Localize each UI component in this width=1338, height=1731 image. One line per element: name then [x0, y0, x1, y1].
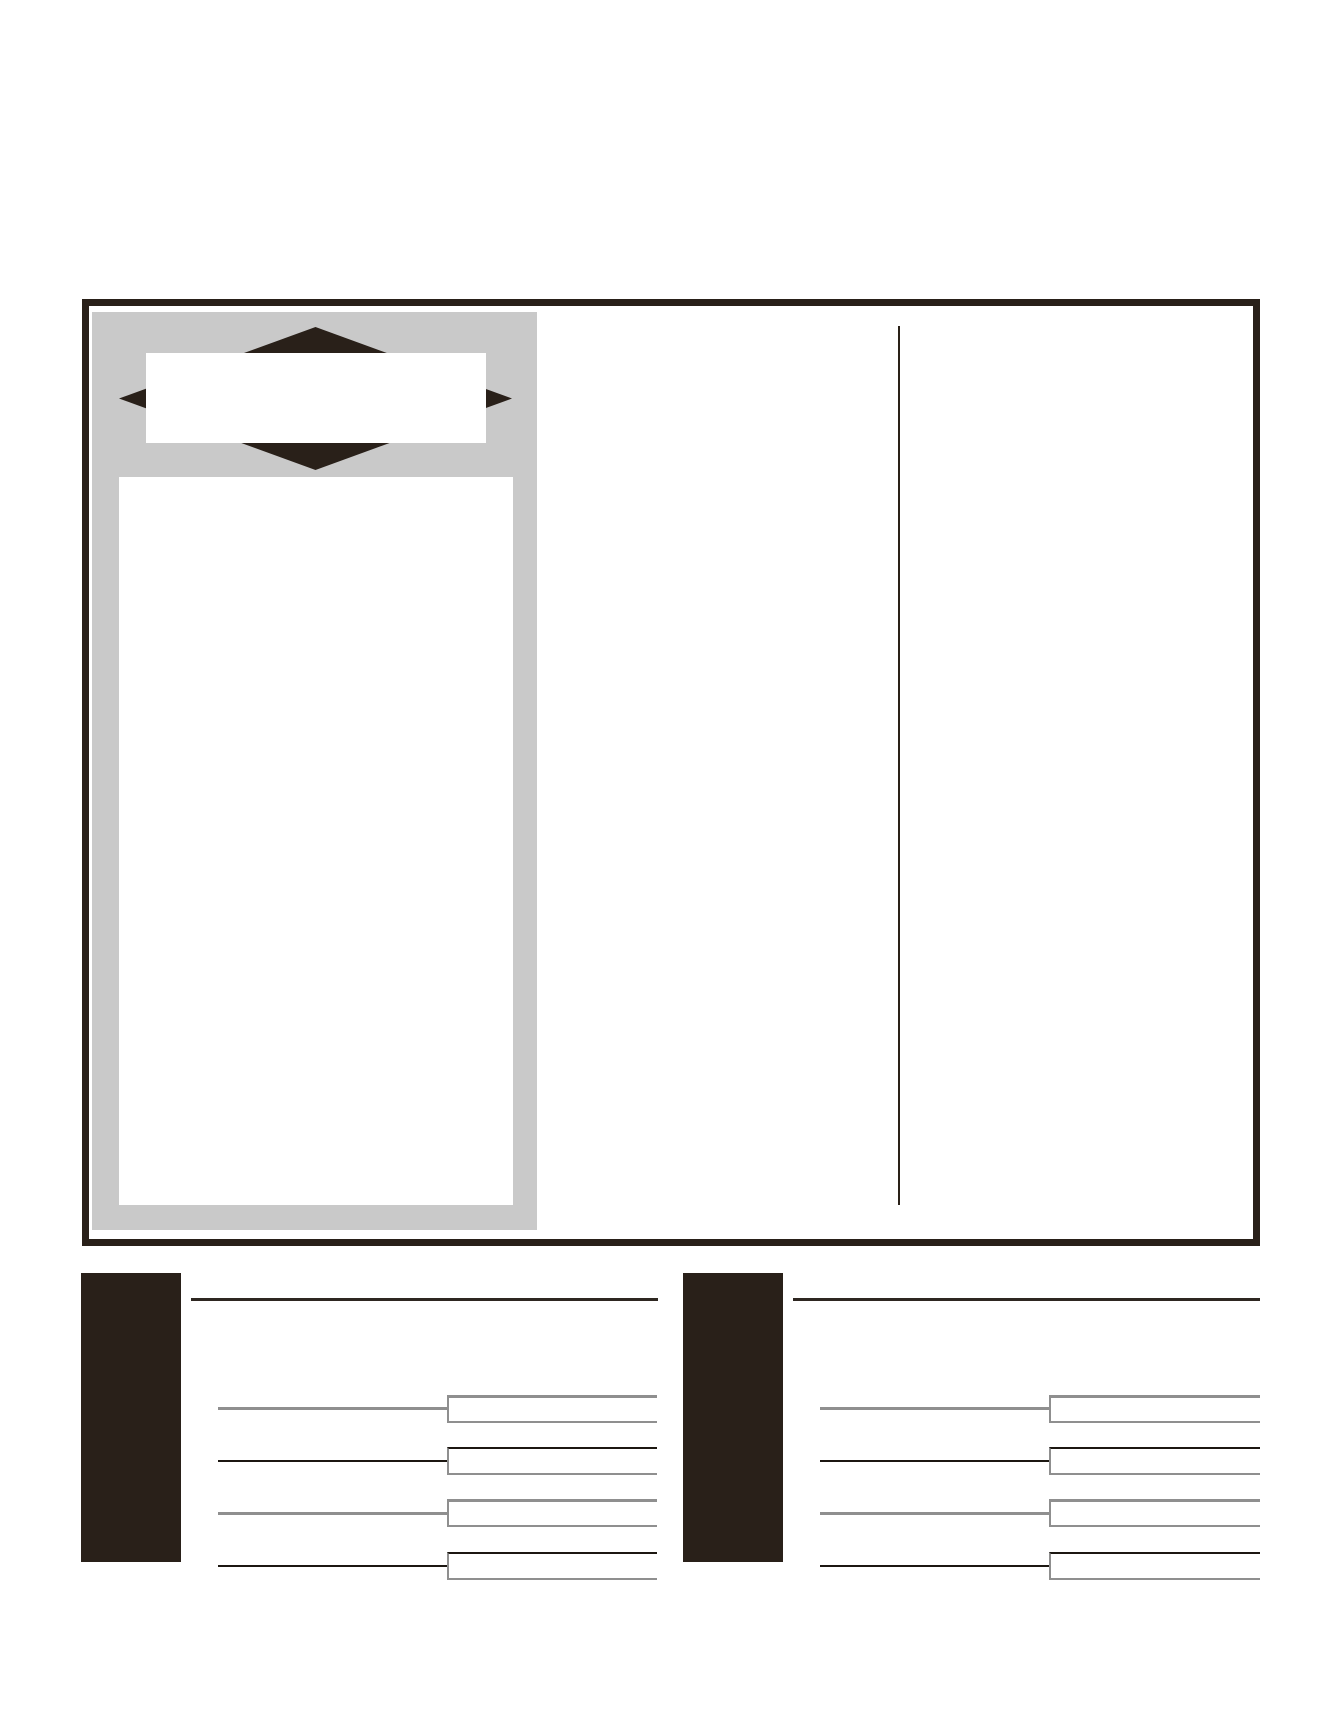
field-value	[449, 1449, 657, 1473]
field-value	[1051, 1398, 1260, 1421]
section-2-label	[683, 1273, 783, 1562]
section-1-field-line	[218, 1512, 447, 1515]
section-1-field-line	[218, 1565, 447, 1567]
section-1-field-line	[218, 1407, 447, 1410]
section-2-field-line	[820, 1407, 1049, 1410]
photo-area[interactable]	[119, 477, 513, 1205]
section-2-field-line	[820, 1565, 1049, 1567]
field-value	[1051, 1449, 1260, 1473]
title-banner-text	[146, 353, 486, 443]
section-1-field-box[interactable]	[447, 1499, 657, 1527]
section-1-field-box[interactable]	[447, 1395, 657, 1423]
section-1-rule	[191, 1298, 658, 1301]
column-divider-line	[898, 326, 900, 1205]
section-2-field-box[interactable]	[1049, 1395, 1260, 1423]
section-2-field-line	[820, 1512, 1049, 1515]
section-2-field-box[interactable]	[1049, 1552, 1260, 1580]
section-2-field-box[interactable]	[1049, 1499, 1260, 1527]
field-value	[1051, 1502, 1260, 1525]
section-1-field-box[interactable]	[447, 1552, 657, 1580]
section-2-field-box[interactable]	[1049, 1447, 1260, 1475]
field-value	[449, 1502, 657, 1525]
section-2-field-line	[820, 1460, 1049, 1462]
title-banner[interactable]	[146, 353, 486, 443]
photo-area-text	[119, 477, 513, 1205]
field-value	[1051, 1554, 1260, 1578]
section-2-rule	[793, 1298, 1260, 1301]
field-value	[449, 1398, 657, 1421]
section-2-label-block	[683, 1273, 783, 1562]
document-page	[0, 0, 1338, 1731]
section-1-label-block	[81, 1273, 181, 1562]
section-1-field-box[interactable]	[447, 1447, 657, 1475]
section-1-field-line	[218, 1460, 447, 1462]
field-value	[449, 1554, 657, 1578]
section-1-label	[81, 1273, 181, 1562]
